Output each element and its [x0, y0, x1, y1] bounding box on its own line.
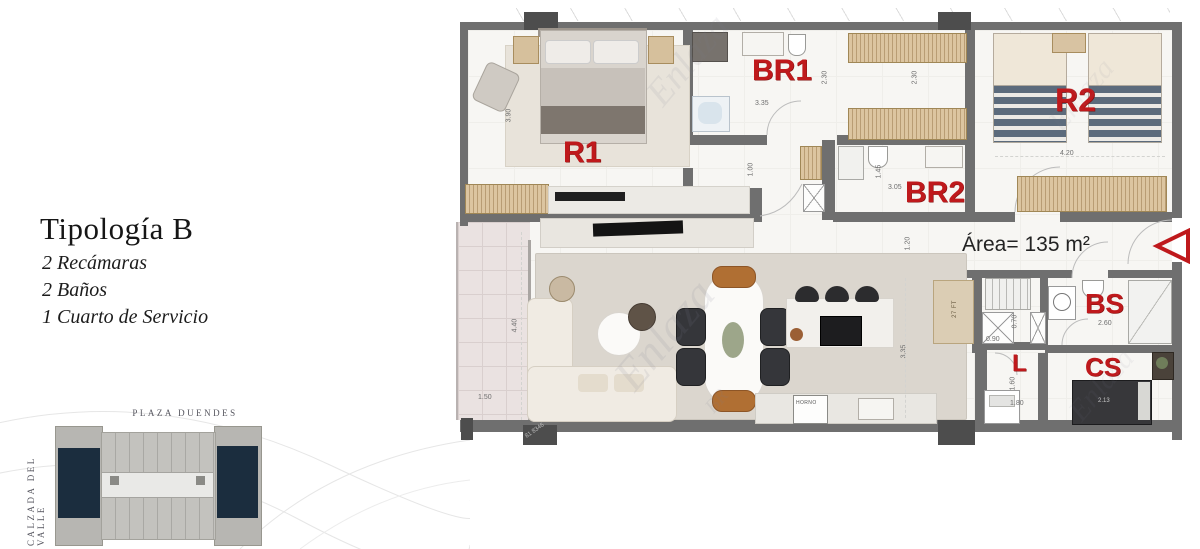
centerpiece-plant [722, 322, 744, 358]
room-label-cs: CS [1085, 354, 1121, 380]
dim-laundry-depth: 1.60 [1009, 377, 1016, 391]
br2-shower [838, 146, 864, 180]
highlighted-unit-right [217, 446, 258, 518]
dimension-guide [995, 156, 1165, 157]
dim-closet-depth: 2.30 [911, 71, 918, 85]
r1-blanket [541, 68, 645, 108]
r1-nightstand [513, 36, 539, 64]
typology-title: Tipología B [40, 211, 193, 247]
dim-laundry-width: 1.80 [1010, 400, 1024, 407]
room-label-br1: BR1 [752, 56, 812, 86]
br1-bathtub-basin [698, 102, 722, 124]
dim-br1-depth: 2.30 [821, 71, 828, 85]
dining-chair-wood [712, 390, 756, 412]
kitchen-sink [858, 398, 894, 420]
planter [549, 276, 575, 302]
r1-nightstand [648, 36, 674, 64]
dim-terrace-depth: 4.40 [511, 319, 518, 333]
r1-tv [555, 192, 625, 201]
r1-closet [465, 184, 549, 214]
r2-bed-2-duvet [1088, 85, 1162, 143]
bs-washbasin-drum [1053, 293, 1071, 311]
r2-nightstand [1052, 33, 1086, 53]
area-label: Área= 135 m² [962, 233, 1090, 257]
refrigerator-label: 27 FT [952, 300, 958, 318]
dim-r2-width: 4.20 [1060, 150, 1074, 157]
dim-br2-depth: 1.45 [875, 165, 882, 179]
br1-toilet [788, 34, 806, 56]
dim-bs-width: 2.60 [1098, 320, 1112, 327]
dim-cs-bed-width: 2.13 [1098, 398, 1110, 404]
unit-floor-plan: R1 3.90 BR1 3.35 2.30 2.30 BR2 1.45 3.05… [450, 8, 1200, 453]
dining-chair [676, 348, 706, 386]
bs-shower [1128, 280, 1172, 344]
dim-shaft-depth: 0.70 [1011, 315, 1018, 329]
kitchen-counter [755, 393, 937, 424]
dim-br2-width: 3.05 [888, 184, 902, 191]
r1-pillow [545, 40, 591, 64]
room-label-br2: BR2 [905, 178, 965, 208]
dim-kitchen-depth: 3.35 [900, 345, 907, 359]
service-stairs [985, 278, 1031, 310]
shaft [803, 184, 825, 212]
feature-bedrooms: 2 Recámaras [42, 252, 147, 275]
floor-plan-sheet: Tipología B 2 Recámaras 2 Baños 1 Cuarto… [0, 0, 1200, 549]
oven-label: HORNO [796, 400, 817, 406]
room-label-laundry: L [1012, 352, 1027, 376]
elevator-core [196, 476, 205, 485]
dining-chair [760, 348, 790, 386]
feature-bathrooms: 2 Baños [42, 279, 107, 302]
dining-chair-wood [712, 266, 756, 288]
street-label-top: PLAZA DUENDES [110, 408, 260, 418]
closet-top [848, 33, 967, 63]
r2-closet [1017, 176, 1167, 212]
shaft [1030, 312, 1046, 344]
br2-cabinet [800, 146, 822, 180]
dim-br1-width: 3.35 [755, 100, 769, 107]
site-plan: PLAZA DUENDES CALZADA DEL VALLE [30, 400, 290, 549]
entry-marker-triangle [1150, 228, 1192, 264]
side-table [628, 303, 656, 331]
cs-plant [1156, 357, 1168, 369]
dim-hall-width: 1.00 [747, 163, 754, 177]
dim-shaft-width: 0.90 [986, 336, 1000, 343]
br1-shower [692, 32, 728, 62]
br1-sink [742, 32, 784, 56]
bowl [790, 328, 803, 341]
dimension-guide [905, 278, 906, 418]
room-label-r1: R1 [563, 138, 601, 168]
r1-duvet-band [541, 106, 645, 134]
street-label-left: CALZADA DEL VALLE [26, 436, 46, 546]
cooktop [820, 316, 862, 346]
room-label-bs: BS [1085, 290, 1124, 318]
highlighted-unit-left [58, 448, 100, 518]
closet-bottom [848, 108, 967, 140]
r1-pillow [593, 40, 639, 64]
sofa-cushion [578, 374, 608, 392]
feature-service-room: 1 Cuarto de Servicio [42, 306, 208, 329]
dining-chair [676, 308, 706, 346]
room-label-r2: R2 [1055, 84, 1096, 116]
dim-entry-depth: 1.20 [904, 237, 911, 251]
br2-vanity [925, 146, 963, 168]
elevator-core [110, 476, 119, 485]
dim-terrace-width: 1.50 [478, 394, 492, 401]
dim-r1-depth: 3.90 [505, 109, 512, 123]
cs-pillow [1138, 382, 1150, 420]
sofa-cushion [614, 374, 644, 392]
